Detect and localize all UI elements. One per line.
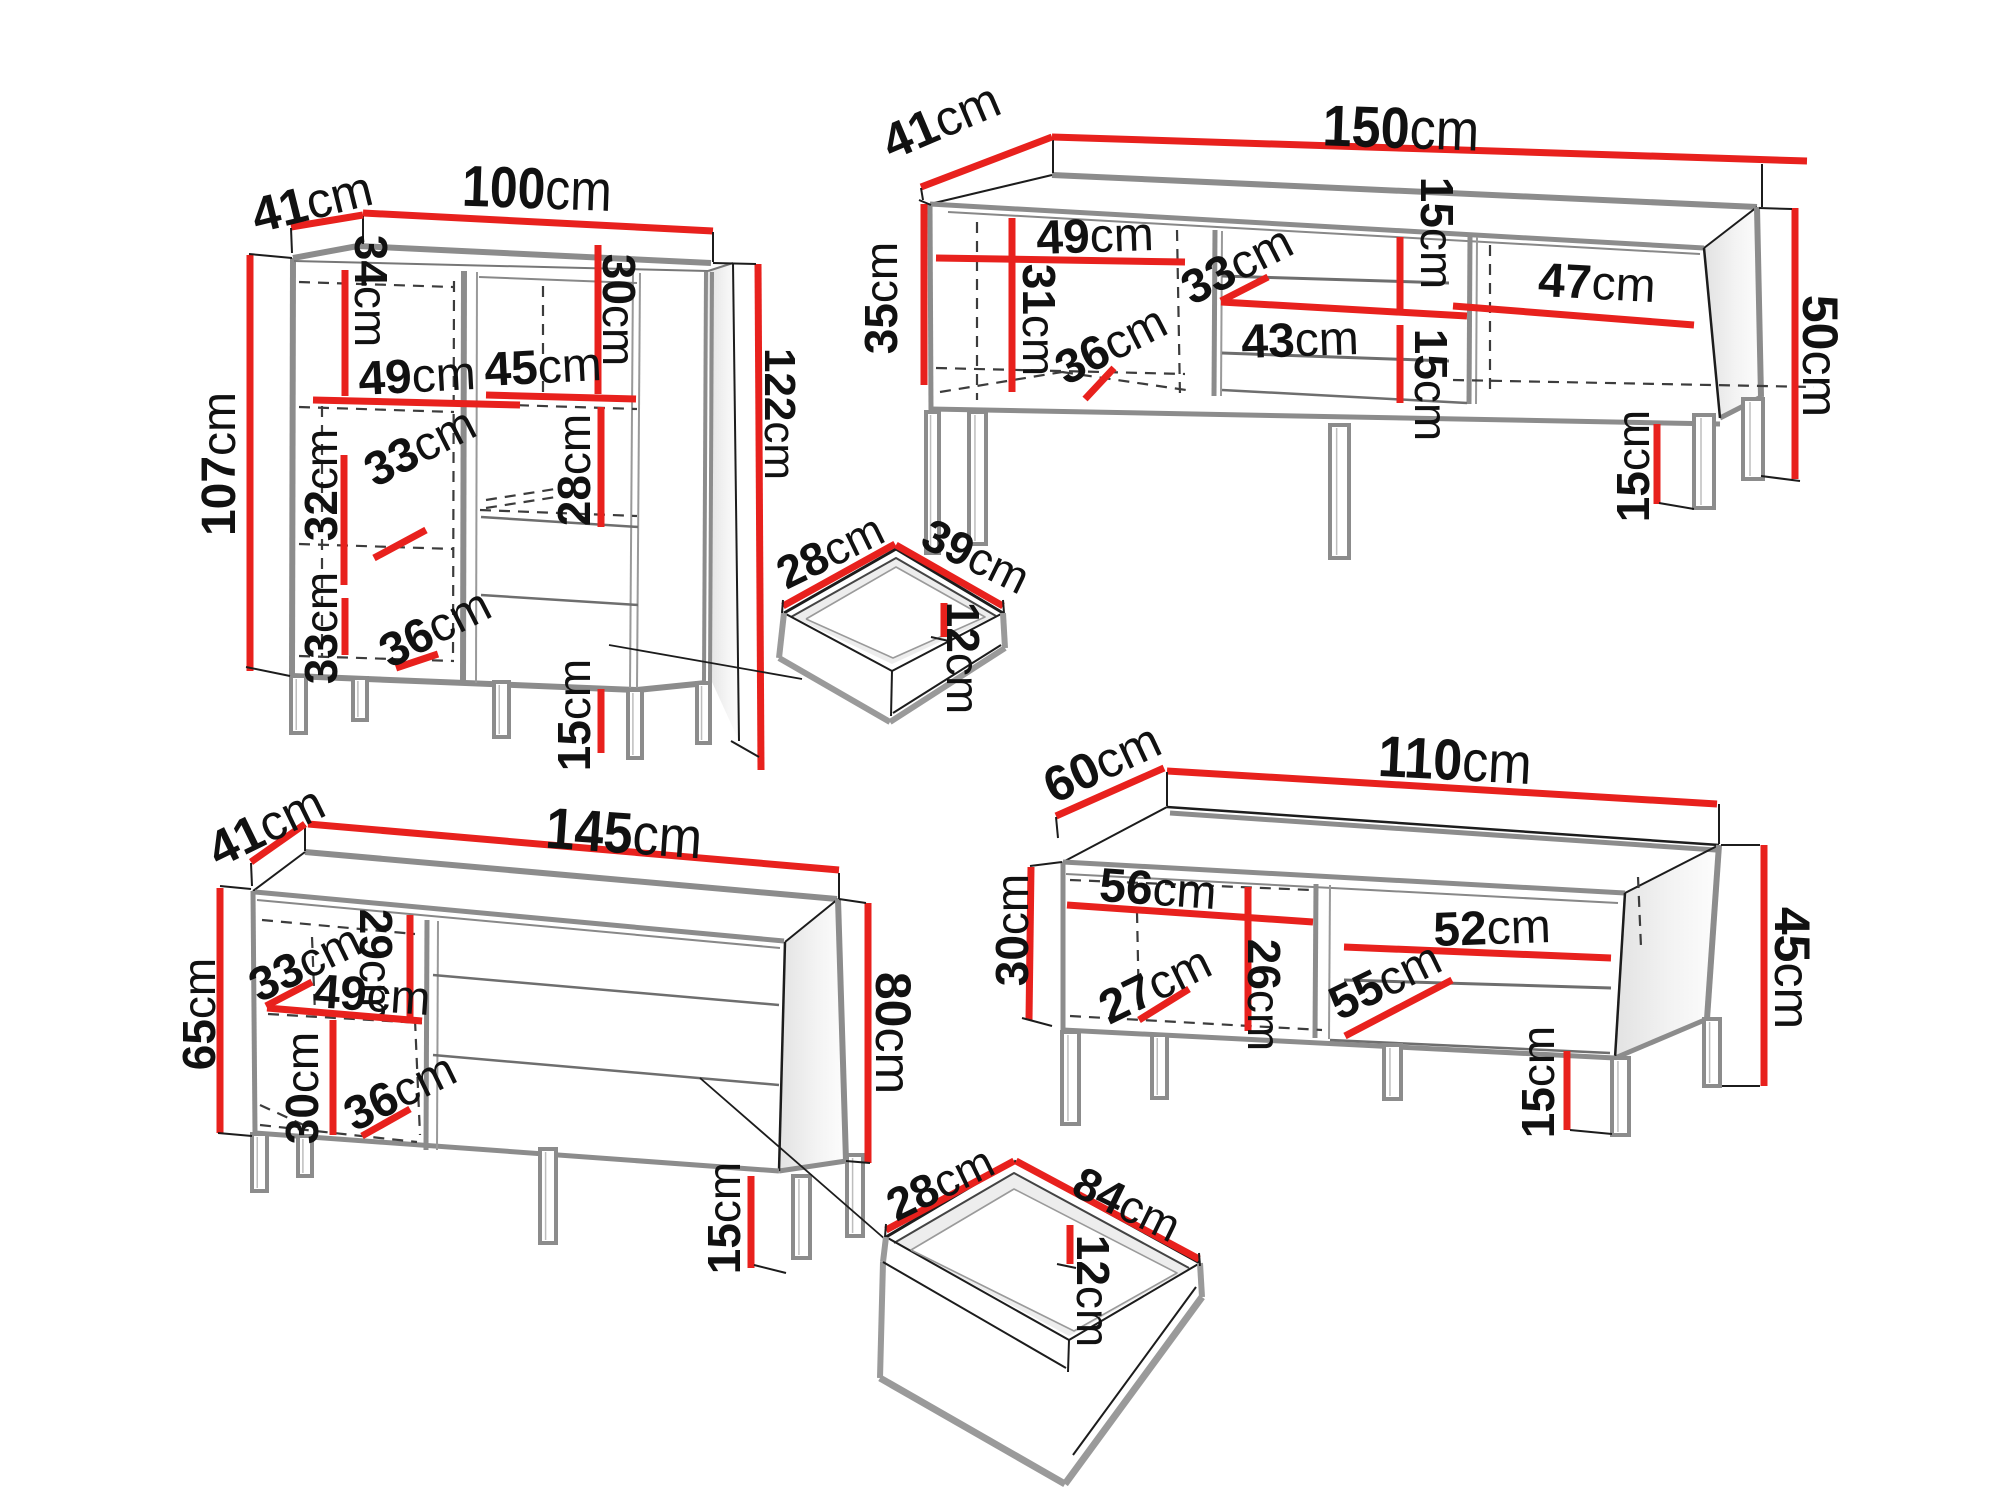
svg-text:15cm: 15cm xyxy=(548,659,600,772)
svg-text:12cm: 12cm xyxy=(1067,1235,1119,1348)
svg-text:110cm: 110cm xyxy=(1377,723,1534,796)
svg-text:35cm: 35cm xyxy=(855,242,907,355)
svg-text:15cm: 15cm xyxy=(1405,329,1457,442)
svg-text:32cm: 32cm xyxy=(295,429,347,542)
svg-text:107cm: 107cm xyxy=(193,392,246,536)
svg-text:34cm: 34cm xyxy=(345,235,397,348)
svg-text:15cm: 15cm xyxy=(1411,177,1463,290)
svg-text:43cm: 43cm xyxy=(1240,311,1359,368)
svg-text:49cm: 49cm xyxy=(1035,207,1154,264)
svg-text:30cm: 30cm xyxy=(986,874,1038,987)
svg-text:26cm: 26cm xyxy=(1238,939,1290,1052)
svg-text:122cm: 122cm xyxy=(756,348,805,480)
svg-text:15cm: 15cm xyxy=(1512,1026,1564,1139)
svg-text:56cm: 56cm xyxy=(1098,858,1219,919)
svg-text:45cm: 45cm xyxy=(1764,907,1820,1029)
svg-text:28cm: 28cm xyxy=(548,414,600,527)
svg-text:65cm: 65cm xyxy=(173,958,225,1071)
svg-text:12cm: 12cm xyxy=(937,602,989,715)
svg-text:33cm: 33cm xyxy=(295,572,347,685)
svg-text:145cm: 145cm xyxy=(544,795,705,871)
svg-text:80cm: 80cm xyxy=(865,972,921,1094)
svg-text:47cm: 47cm xyxy=(1537,253,1657,312)
svg-text:15cm: 15cm xyxy=(1607,410,1659,523)
svg-text:100cm: 100cm xyxy=(461,154,613,224)
svg-text:45cm: 45cm xyxy=(483,337,603,396)
svg-text:49cm: 49cm xyxy=(312,964,433,1025)
svg-text:30cm: 30cm xyxy=(276,1032,328,1145)
svg-text:15cm: 15cm xyxy=(698,1162,750,1275)
svg-text:50cm: 50cm xyxy=(1792,295,1848,417)
svg-text:150cm: 150cm xyxy=(1322,93,1481,164)
svg-text:52cm: 52cm xyxy=(1432,899,1551,956)
